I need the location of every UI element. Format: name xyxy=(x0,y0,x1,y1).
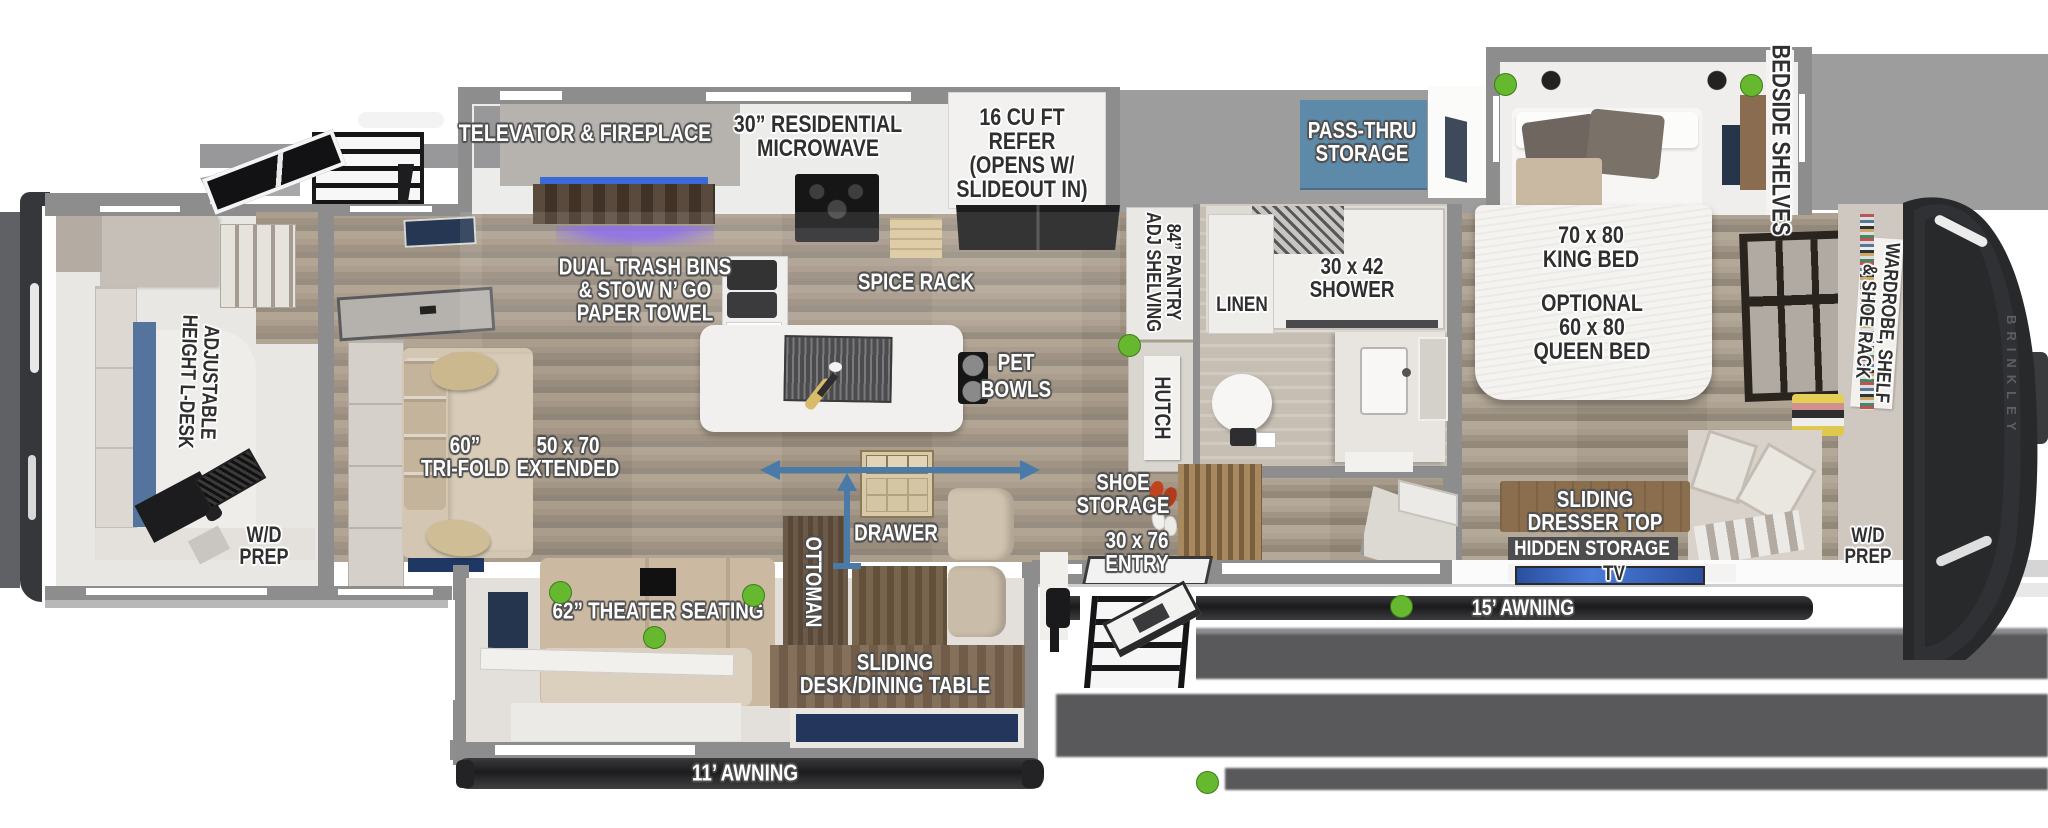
svg-text:BRINKLEY: BRINKLEY xyxy=(2004,315,2019,437)
